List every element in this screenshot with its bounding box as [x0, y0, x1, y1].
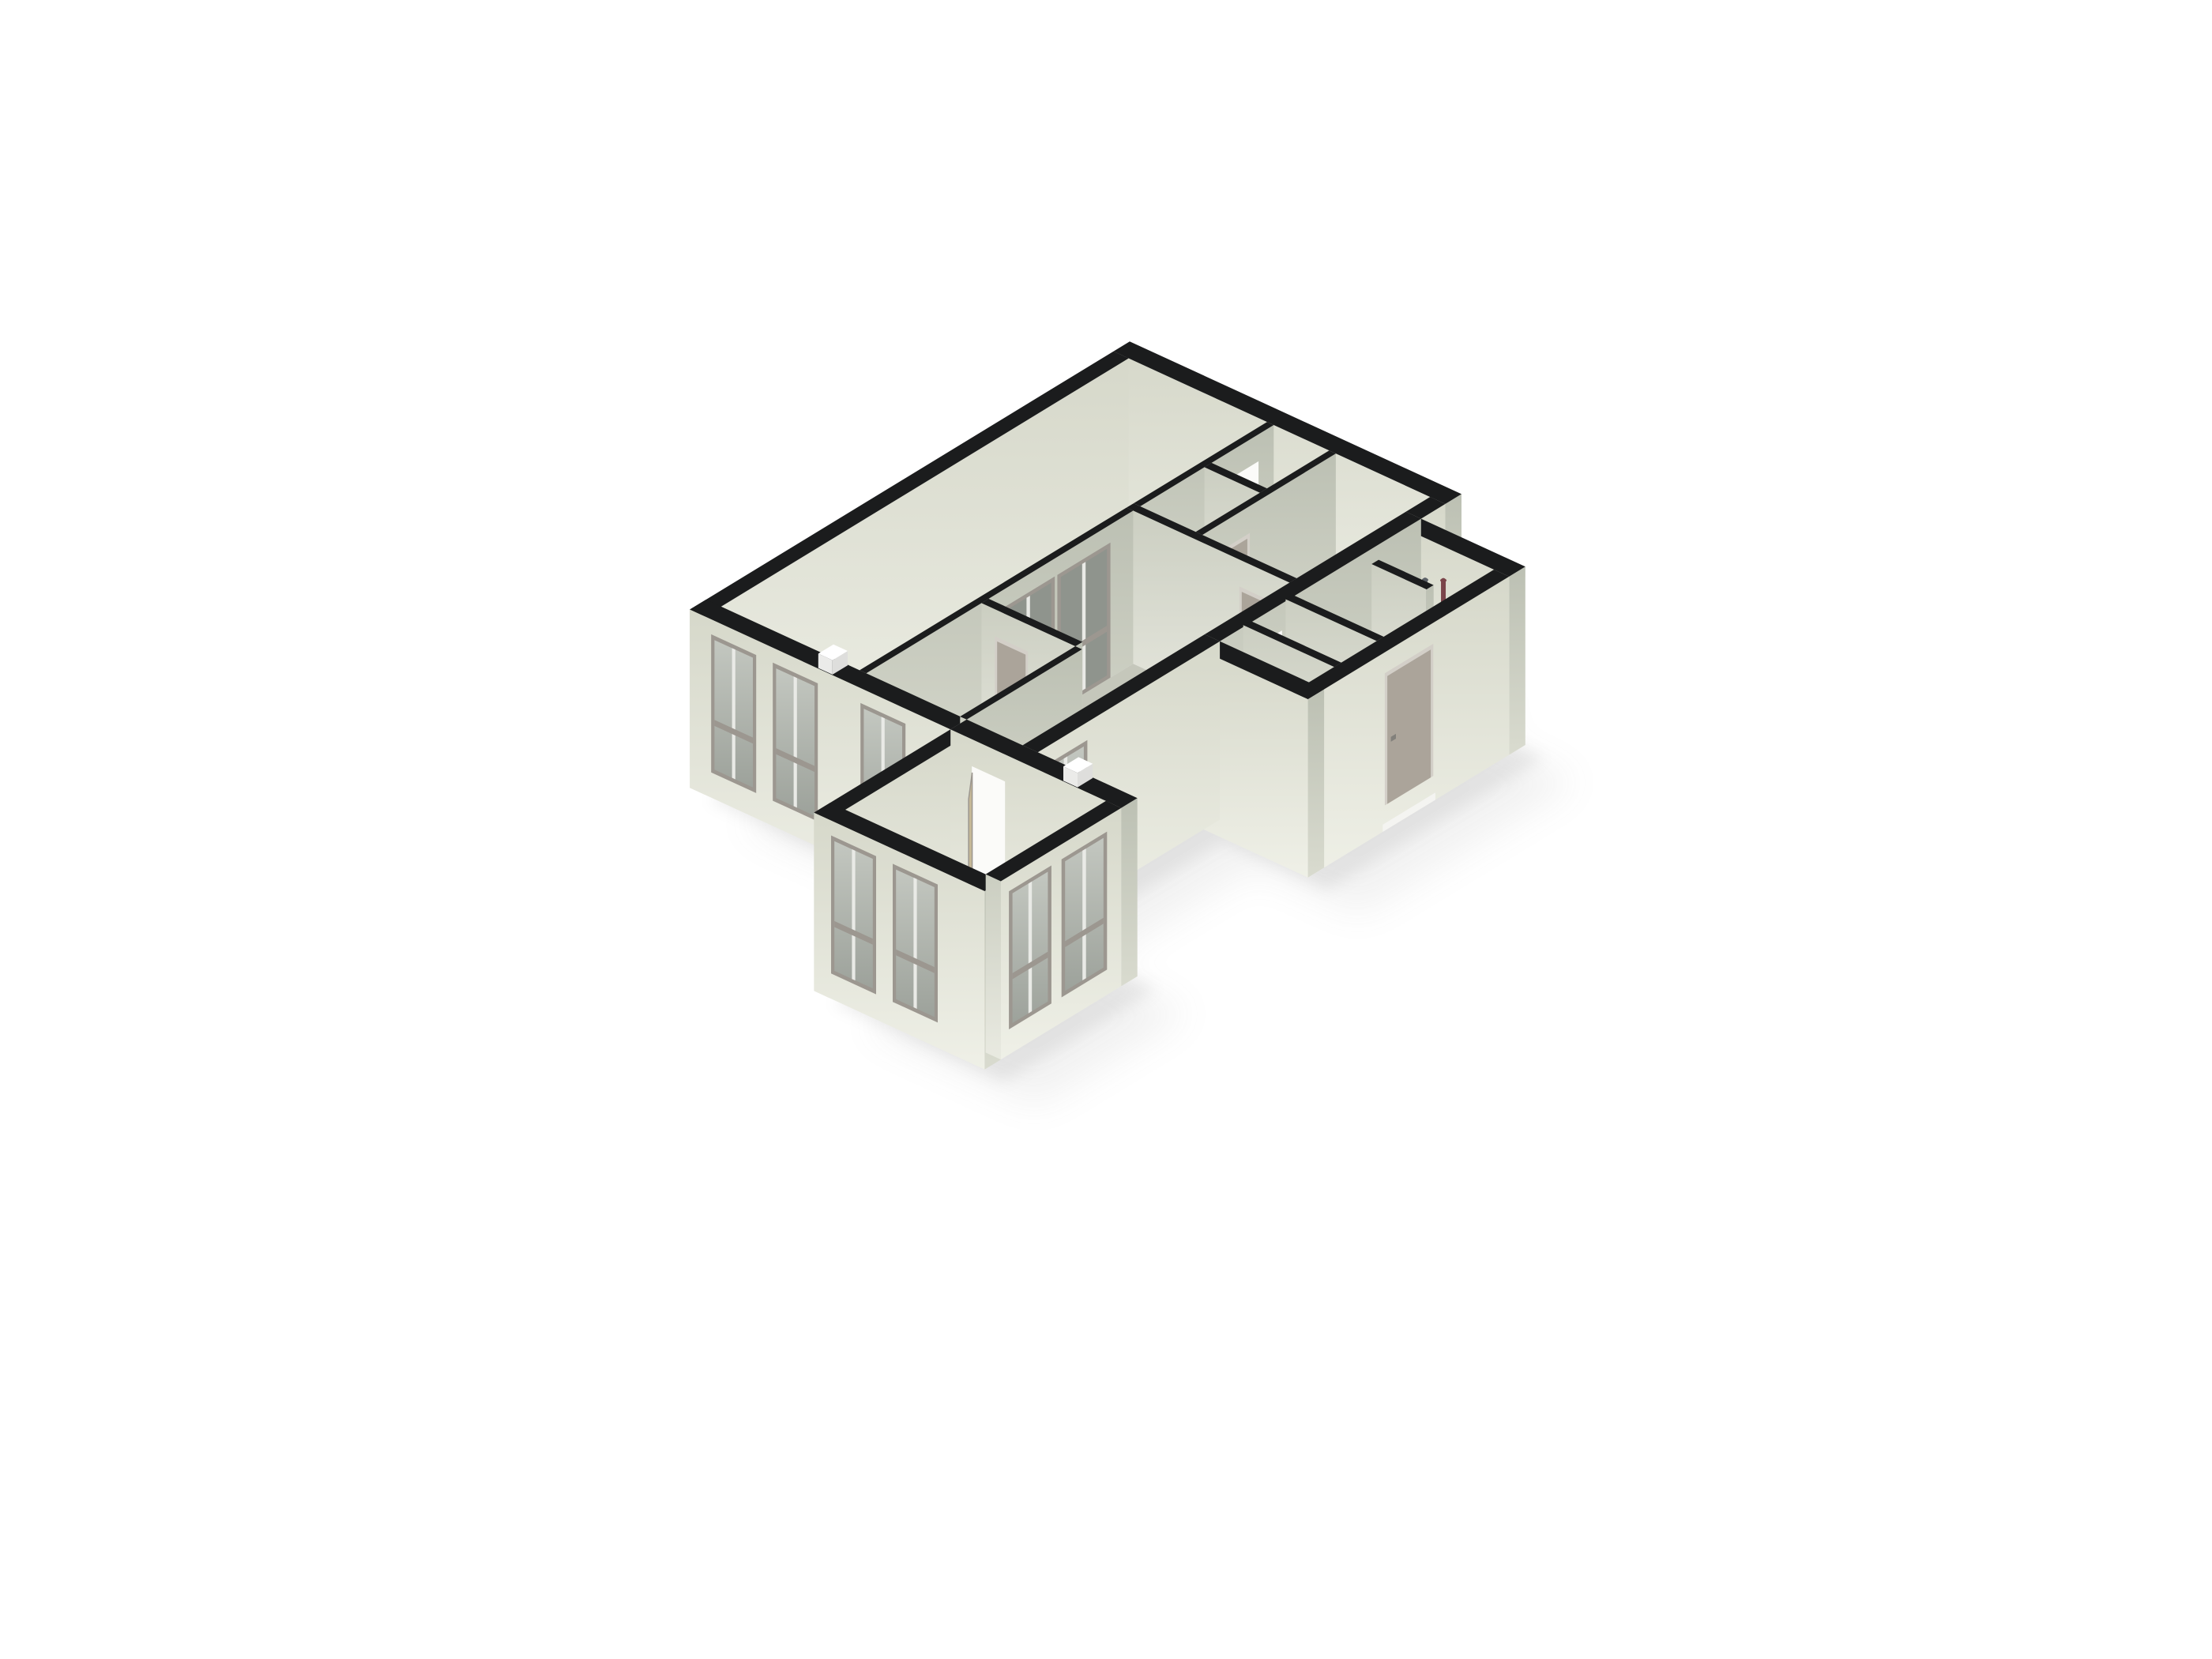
- floor-plan-3d-render: [0, 0, 2212, 1659]
- walls-and-fixtures: [690, 341, 1525, 1069]
- floorplan-viewport: [0, 0, 2212, 1659]
